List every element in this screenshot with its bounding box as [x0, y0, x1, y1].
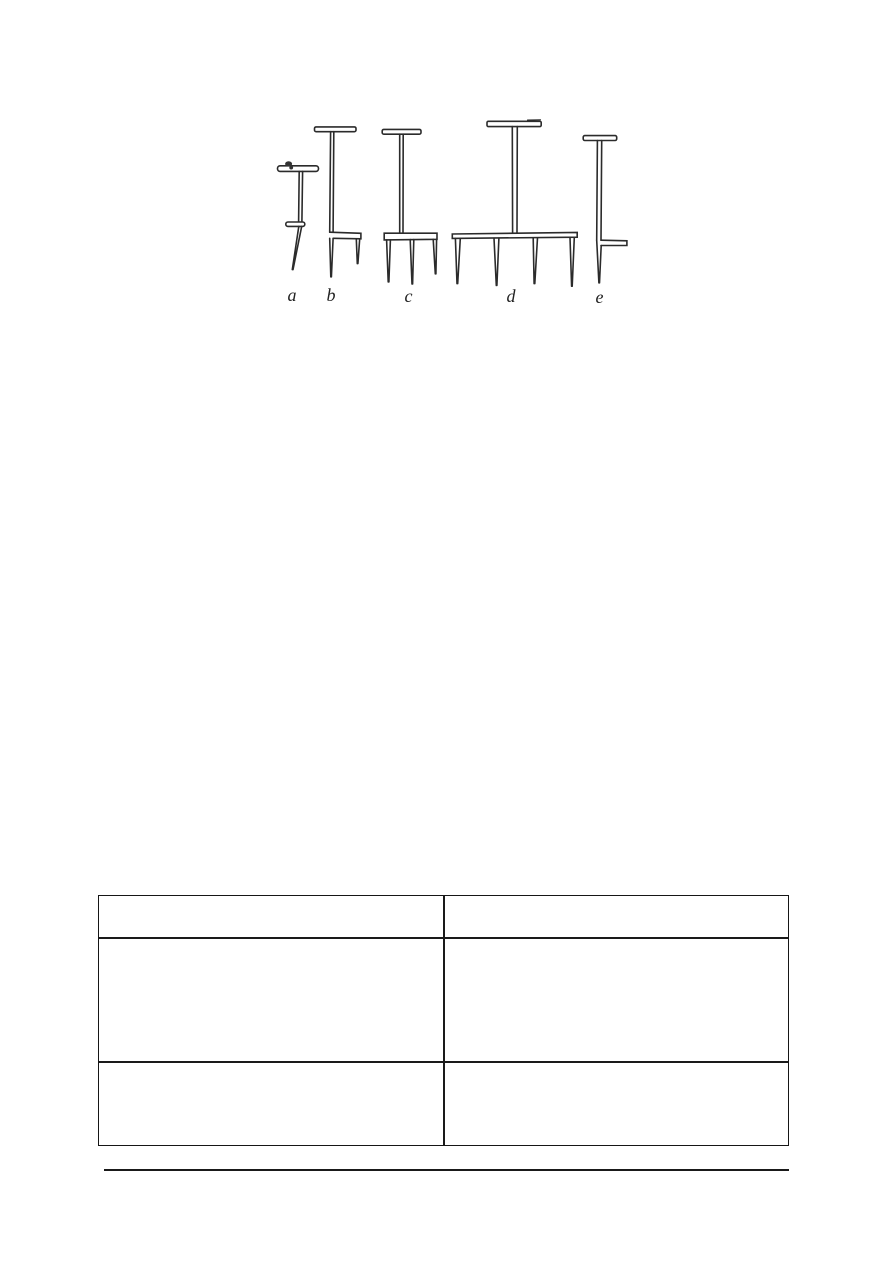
svg-text:c: c	[405, 286, 413, 306]
svg-text:a: a	[288, 285, 297, 305]
svg-text:e: e	[596, 287, 604, 307]
svg-text:b: b	[327, 285, 336, 305]
svg-text:d: d	[507, 286, 517, 306]
